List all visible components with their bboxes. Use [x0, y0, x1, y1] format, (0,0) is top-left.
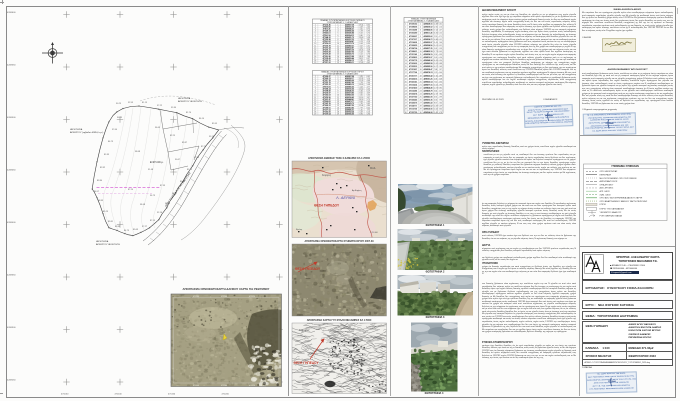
svg-text:Καμάρες: Καμάρες	[299, 328, 310, 332]
svg-text:81.82: 81.82	[187, 169, 193, 171]
svg-text:ΚΤΙΡΙΟ: ΚΤΙΡΙΟ	[600, 204, 607, 206]
svg-text:86.14: 86.14	[199, 118, 205, 120]
svg-text:472520: 472520	[249, 296, 255, 298]
svg-text:97.27: 97.27	[142, 226, 148, 228]
svg-text:19: 19	[337, 114, 339, 116]
svg-text:471150: 471150	[168, 394, 176, 396]
svg-text:19: 19	[314, 114, 316, 116]
svg-text:ΑΓΝΩΣΤΟΥ ΙΔΙΟΚΤΗΤΗ: ΑΓΝΩΣΤΟΥ ΙΔΙΟΚΤΗΤΗ	[96, 243, 120, 246]
svg-text:98.68: 98.68	[135, 151, 141, 153]
svg-text:ΦΩΤΟΓΡΑΦΙΑ 4: ΦΩΤΟΓΡΑΦΙΑ 4	[425, 392, 444, 395]
svg-text:1:25 000: 1:25 000	[370, 232, 379, 234]
svg-text:90.67: 90.67	[175, 159, 181, 161]
svg-text:8.96: 8.96	[359, 114, 362, 116]
svg-text:472240: 472240	[221, 296, 227, 298]
svg-text:98.83: 98.83	[98, 200, 104, 202]
svg-text:19: 19	[314, 62, 316, 64]
svg-text:ΚΤΙΡΙΟ ΥΠΟ ΚΑΤΕΔΑΦΙΣΗ: ΚΤΙΡΙΟ ΥΠΟ ΚΑΤΕΔΑΦΙΣΗ	[600, 207, 625, 210]
svg-text:471317.02: 471317.02	[323, 61, 331, 64]
svg-text:ΙΔΙΟΚΤΗΣΙΑ: ΙΔΙΟΚΤΗΣΙΑ	[70, 128, 83, 131]
svg-text:81.74: 81.74	[186, 112, 192, 114]
svg-text:Βρύση: Βρύση	[296, 228, 303, 231]
svg-text:87.21: 87.21	[201, 146, 207, 148]
svg-text:19: 19	[337, 62, 339, 64]
svg-text:84.79: 84.79	[124, 230, 130, 232]
svg-text:91.84: 91.84	[171, 107, 177, 109]
svg-text:82.82: 82.82	[100, 167, 106, 169]
svg-text:96.73: 96.73	[150, 195, 156, 197]
svg-text:ΟΡΙΟ ΙΔΙΟΚΤΗΣΙΑΣ: ΟΡΙΟ ΙΔΙΟΚΤΗΣΙΑΣ	[600, 170, 619, 173]
svg-text:81.19: 81.19	[142, 102, 148, 104]
svg-text:ΑΣΦ. ΔΡΟΜΟΣ: ΑΣΦ. ΔΡΟΜΟΣ	[600, 187, 615, 190]
svg-text:471050: 471050	[61, 394, 69, 396]
svg-text:4208450: 4208450	[7, 170, 16, 172]
svg-text:ΑΓΝΩΣΤΟΥ ΙΔΙΟΚΤΗΤΗ: ΑΓΝΩΣΤΟΥ ΙΔΙΟΚΤΗΤΗ	[178, 100, 202, 103]
svg-text:83.83: 83.83	[115, 226, 121, 228]
svg-text:ΦΩΤΟΓΡΑΦΙΑ 3: ΦΩΤΟΓΡΑΦΙΑ 3	[426, 316, 445, 319]
svg-text:Καμάρες: Καμάρες	[322, 174, 332, 177]
svg-text:Αγ.Ειρήνη: Αγ.Ειρήνη	[352, 189, 362, 192]
svg-text:97.64: 97.64	[194, 157, 200, 159]
svg-text:89.63: 89.63	[133, 229, 139, 231]
svg-text:ΟΡΙΟ ΑΠΟ ΦΩΤΟΕΡΜΗΝΕΙΑ ΔΑΣΙΚΟΥ: ΟΡΙΟ ΑΠΟ ΦΩΤΟΕΡΜΗΝΕΙΑ ΔΑΣΙΚΟΥ ΧΑΡΤΗ	[600, 197, 643, 200]
svg-text:4208350: 4208350	[7, 275, 16, 277]
svg-text:ΑΠΟΣΠΑΣΜΑ ΟΡΘΟΦΩΤΟΧΑΡΤΗ ΔΑΣΙΚΟ: ΑΠΟΣΠΑΣΜΑ ΟΡΘΟΦΩΤΟΧΑΡΤΗ ΔΑΣΙΚΟΥ ΧΑΡΤΗ Π.…	[183, 287, 270, 291]
svg-text:471960: 471960	[193, 296, 199, 298]
svg-text:87.15: 87.15	[150, 220, 156, 222]
svg-text:471200: 471200	[222, 394, 230, 396]
svg-text:98.48: 98.48	[140, 204, 146, 206]
svg-text:ΦΩΤΟΓΡΑΦΙΑ 1: ΦΩΤΟΓΡΑΦΙΑ 1	[426, 224, 445, 227]
svg-text:97.64: 97.64	[112, 129, 118, 131]
svg-text:87.33: 87.33	[160, 185, 166, 187]
svg-text:ΥΠΟΜΝΗΜΑ ΣΥΜΒΟΛΩΝ: ΥΠΟΜΝΗΜΑ ΣΥΜΒΟΛΩΝ	[611, 165, 639, 168]
svg-text:97.22: 97.22	[157, 105, 163, 107]
svg-text:ΡΟΗ ΟΜΒΡΙΩΝ ΥΔΑΤΩΝ: ΡΟΗ ΟΜΒΡΙΩΝ ΥΔΑΤΩΝ	[600, 215, 623, 218]
svg-text:ΘΕΣΗ ΓΗΠΕΔΟΥ: ΘΕΣΗ ΓΗΠΕΔΟΥ	[294, 361, 320, 365]
svg-text:ΠΕΡΙΦΡΑΞΗ: ΠΕΡΙΦΡΑΞΗ	[600, 174, 612, 177]
svg-text:ΟΔΟΣ ΠΛΑΤΕΙΑ Ν.ΑΓΙΑΣ ΕΛΕΟΥΣΑΣ: ΟΔΟΣ ΠΛΑΤΕΙΑ Ν.ΑΓΙΑΣ ΕΛΕΟΥΣΑΣ	[164, 171, 192, 207]
svg-text:4208400: 4208400	[7, 222, 16, 224]
svg-text:ΟΡΙΑ ΔΡΟΜΟΥ: ΟΡΙΑ ΔΡΟΜΟΥ	[600, 183, 614, 186]
svg-text:ΜΗ ΥΛΟΠΟΙΗΜΕΝΟ ΟΡΙΟ ΓΕΙΤΟΝΙΚΩΝ: ΜΗ ΥΛΟΠΟΙΗΜΕΝΟ ΟΡΙΟ ΓΕΙΤΟΝΙΚΩΝ	[600, 178, 637, 180]
svg-text:ΑΓΝΩΣΤΟΥ (εμβαδού 4985,6 τ.μ.): ΑΓΝΩΣΤΟΥ (εμβαδού 4985,6 τ.μ.)	[70, 131, 104, 134]
svg-text:89.81: 89.81	[108, 221, 114, 223]
svg-text:4208369.11: 4208369.11	[345, 61, 354, 64]
svg-text:ΙΔΙΟΚΤΗΣΙΑ: ΙΔΙΟΚΤΗΣΙΑ	[96, 240, 109, 243]
svg-text:471960: 471960	[193, 385, 199, 387]
svg-text:91.48: 91.48	[148, 169, 154, 171]
svg-text:ΑΠΟΣΠΑΣΜΑ ΕΘΝΙΚΗΣ ΤΟΖΕ Χ.ΚΑΜΑΡ: ΑΠΟΣΠΑΣΜΑ ΕΘΝΙΚΗΣ ΤΟΖΕ Χ.ΚΑΜΑΡΕΣ ΚΛ 1:25…	[308, 157, 371, 160]
svg-text:85.23: 85.23	[103, 211, 109, 213]
svg-text:5.96: 5.96	[367, 114, 370, 116]
svg-text:90.29: 90.29	[116, 103, 122, 105]
svg-text:4208300: 4208300	[7, 327, 16, 329]
svg-text:86.73: 86.73	[108, 141, 114, 143]
svg-text:4208550: 4208550	[7, 65, 16, 67]
svg-text:472240: 472240	[221, 385, 227, 387]
svg-text:ΦΩΤΟΓΡΑΦΙΑ 2: ΦΩΤΟΓΡΑΦΙΑ 2	[426, 271, 445, 274]
svg-text:87.20: 87.20	[128, 189, 134, 191]
svg-text:ΑΠΟΣΠΑΣΜΑ ΟΡΘΟΦΩΤΟΧΑΡΤΗ ΚΤΗΜΑΤ: ΑΠΟΣΠΑΣΜΑ ΟΡΘΟΦΩΤΟΧΑΡΤΗ ΚΤΗΜΑΤΟΛΟΓΙΟΥ 20…	[304, 240, 374, 243]
svg-text:471100: 471100	[115, 394, 123, 396]
svg-text:82.65: 82.65	[212, 123, 218, 125]
svg-text:17.85: 17.85	[359, 62, 363, 64]
svg-text:4208106.55: 4208106.55	[345, 113, 354, 116]
svg-text:Λ. ΑΕΡΑΝΙ: Λ. ΑΕΡΑΝΙ	[335, 195, 356, 200]
svg-text:82.25: 82.25	[170, 135, 176, 137]
svg-text:Βαρδιά: Βαρδιά	[352, 360, 360, 363]
svg-text:471376.04: 471376.04	[323, 113, 331, 116]
svg-text:92.16: 92.16	[157, 212, 163, 214]
svg-text:4.02: 4.02	[367, 62, 370, 64]
svg-text:ΑΠΟΣΠΑΣΜΑ ΧΑΡΤΗ ΓΥΣ ΦΥΛΛΟ ΜΕΛΑ: ΑΠΟΣΠΑΣΜΑ ΧΑΡΤΗ ΓΥΣ ΦΥΛΛΟ ΜΕΛΑΜΠΕΣ ΚΛ 1:…	[307, 319, 372, 322]
svg-text:ΑΝΤΗΡΙΔΑ/ΤΟΙΧΟΣ: ΑΝΤΗΡΙΔΑ/ΤΟΙΧΟΣ	[600, 180, 619, 183]
svg-text:90.69: 90.69	[117, 117, 123, 119]
svg-text:4208250: 4208250	[7, 380, 16, 382]
svg-text:92.93: 92.93	[128, 102, 134, 104]
svg-text:ΙΔΙΟΚΤΗΣΙΑ: ΙΔΙΟΚΤΗΣΙΑ	[178, 97, 191, 100]
svg-text:89.87: 89.87	[182, 142, 188, 144]
svg-text:93.18: 93.18	[209, 136, 215, 138]
svg-text:ΘΕΣΗ ΓΗΠΕΔΟΥ: ΘΕΣΗ ΓΗΠΕΔΟΥ	[295, 267, 321, 271]
svg-text:Ε=271.02τ.μ.: Ε=271.02τ.μ.	[150, 162, 164, 164]
svg-text:ΑΓΡ. ΟΔΟΣ: ΑΓΡ. ΟΔΟΣ	[600, 190, 611, 193]
svg-text:4208500: 4208500	[7, 117, 16, 119]
svg-text:96.63: 96.63	[155, 127, 161, 129]
svg-text:4208600: 4208600	[7, 12, 16, 14]
svg-text:ΘΕΣΗ ΓΗΠΕΔΟΥ: ΘΕΣΗ ΓΗΠΕΔΟΥ	[314, 204, 340, 208]
svg-text:83.80: 83.80	[97, 180, 103, 182]
svg-text:ΧΩΜ. ΟΔΟΣ: ΧΩΜ. ΟΔΟΣ	[600, 193, 612, 196]
svg-text:81.89: 81.89	[104, 154, 110, 156]
svg-text:472520: 472520	[249, 385, 255, 387]
svg-text:ΥΨΟΜΕΤΡΟ ΕΔΑΦΟΥΣ: ΥΨΟΜΕΤΡΟ ΕΔΑΦΟΥΣ	[600, 211, 623, 214]
svg-text:ΜΑΔ: ΜΑΔ	[370, 167, 376, 170]
svg-text:86.57: 86.57	[94, 191, 100, 193]
svg-text:ΟΡΙΟ ΑΝΑΡΤΗΜΕΝΟΥ ΔΑΣΙΚΟΥ ΧΑΡΤΗ: ΟΡΙΟ ΑΝΑΡΤΗΜΕΝΟΥ ΔΑΣΙΚΟΥ ΧΑΡΤΗ ΠΕΡΙΟΧΗΣ	[600, 200, 649, 203]
